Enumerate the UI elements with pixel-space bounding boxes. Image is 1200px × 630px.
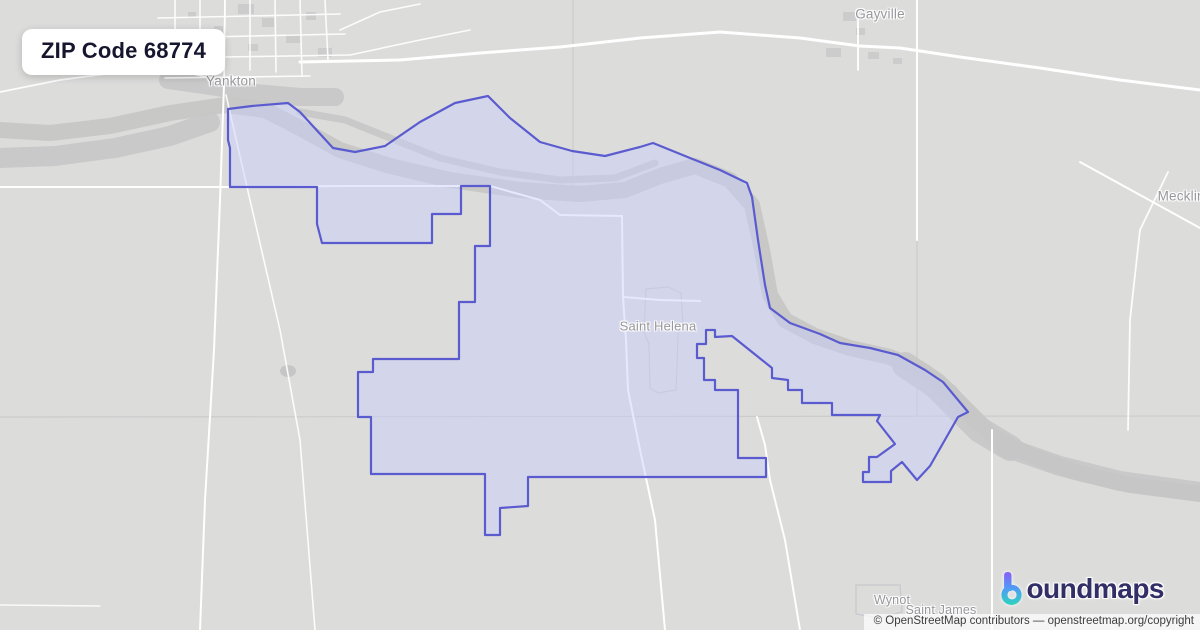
building-footprint: [868, 52, 879, 59]
building-footprint: [893, 58, 902, 64]
title-card: ZIP Code 68774: [22, 29, 225, 75]
map-share-card: GayvilleYanktonMecklingSaint HelenaWynot…: [0, 0, 1200, 630]
boundmaps-wordmark: oundmaps: [1026, 575, 1164, 603]
boundmaps-logo: oundmaps: [998, 572, 1164, 606]
building-footprint: [262, 18, 274, 27]
road-path: [0, 605, 100, 606]
building-footprint: [306, 12, 316, 20]
map-canvas: [0, 0, 1200, 630]
building-footprint: [843, 12, 856, 21]
attribution-bar: © OpenStreetMap contributors — openstree…: [864, 614, 1200, 630]
building-footprint: [238, 4, 254, 14]
building-footprint: [826, 48, 841, 57]
zip-code-title: ZIP Code 68774: [41, 38, 206, 63]
boundmaps-b-gradient-icon: [998, 572, 1025, 606]
attribution-text: © OpenStreetMap contributors — openstree…: [874, 615, 1194, 627]
